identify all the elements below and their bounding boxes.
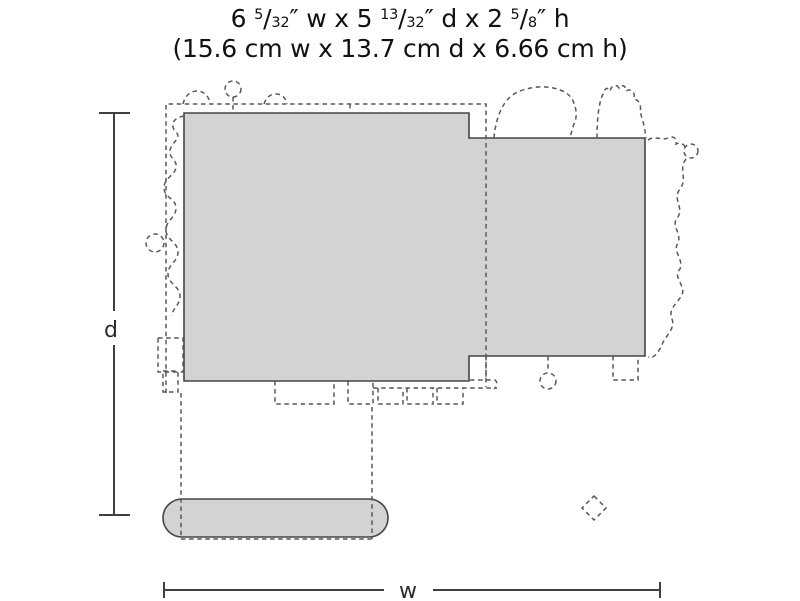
width-label: w xyxy=(399,579,417,601)
depth-label: d xyxy=(104,318,118,343)
shrub-bump-top-left xyxy=(183,91,210,104)
footprint-diagram-page: 6 5/32″ w x 5 13/32″ d x 2 5/8″ h (15.6 … xyxy=(0,0,800,601)
porch-rect-3 xyxy=(378,388,403,404)
notch-dashed-detail xyxy=(470,356,497,389)
depth-dimension-line xyxy=(99,113,130,515)
shrub-bump-top-right xyxy=(264,94,287,104)
porch-rect-2 xyxy=(348,381,373,404)
porch-rect-1 xyxy=(275,381,334,404)
tree-blob-large xyxy=(494,87,576,138)
building-footprint-shape xyxy=(184,113,645,381)
building-footprint-diagram: d w xyxy=(0,0,800,601)
shrub-row-left xyxy=(164,116,184,316)
tree-circle-bottom-right xyxy=(540,373,556,389)
porch-rect-5 xyxy=(437,388,463,404)
depth-dimension: d xyxy=(99,113,130,515)
utility-box-right xyxy=(613,356,638,380)
width-dimension: w xyxy=(164,579,660,601)
rock-outline-right xyxy=(648,159,686,357)
tree-circle-top xyxy=(225,81,241,97)
porch-rect-4 xyxy=(407,388,433,404)
platform-pill-shape xyxy=(163,499,388,537)
tree-circle-left xyxy=(146,234,164,252)
tree-blob-crown xyxy=(597,85,646,138)
shrub-squiggle-top-right xyxy=(648,137,685,148)
utility-box-left xyxy=(158,338,183,372)
diamond-detail xyxy=(582,496,606,520)
shrub-loop-right xyxy=(684,144,698,158)
